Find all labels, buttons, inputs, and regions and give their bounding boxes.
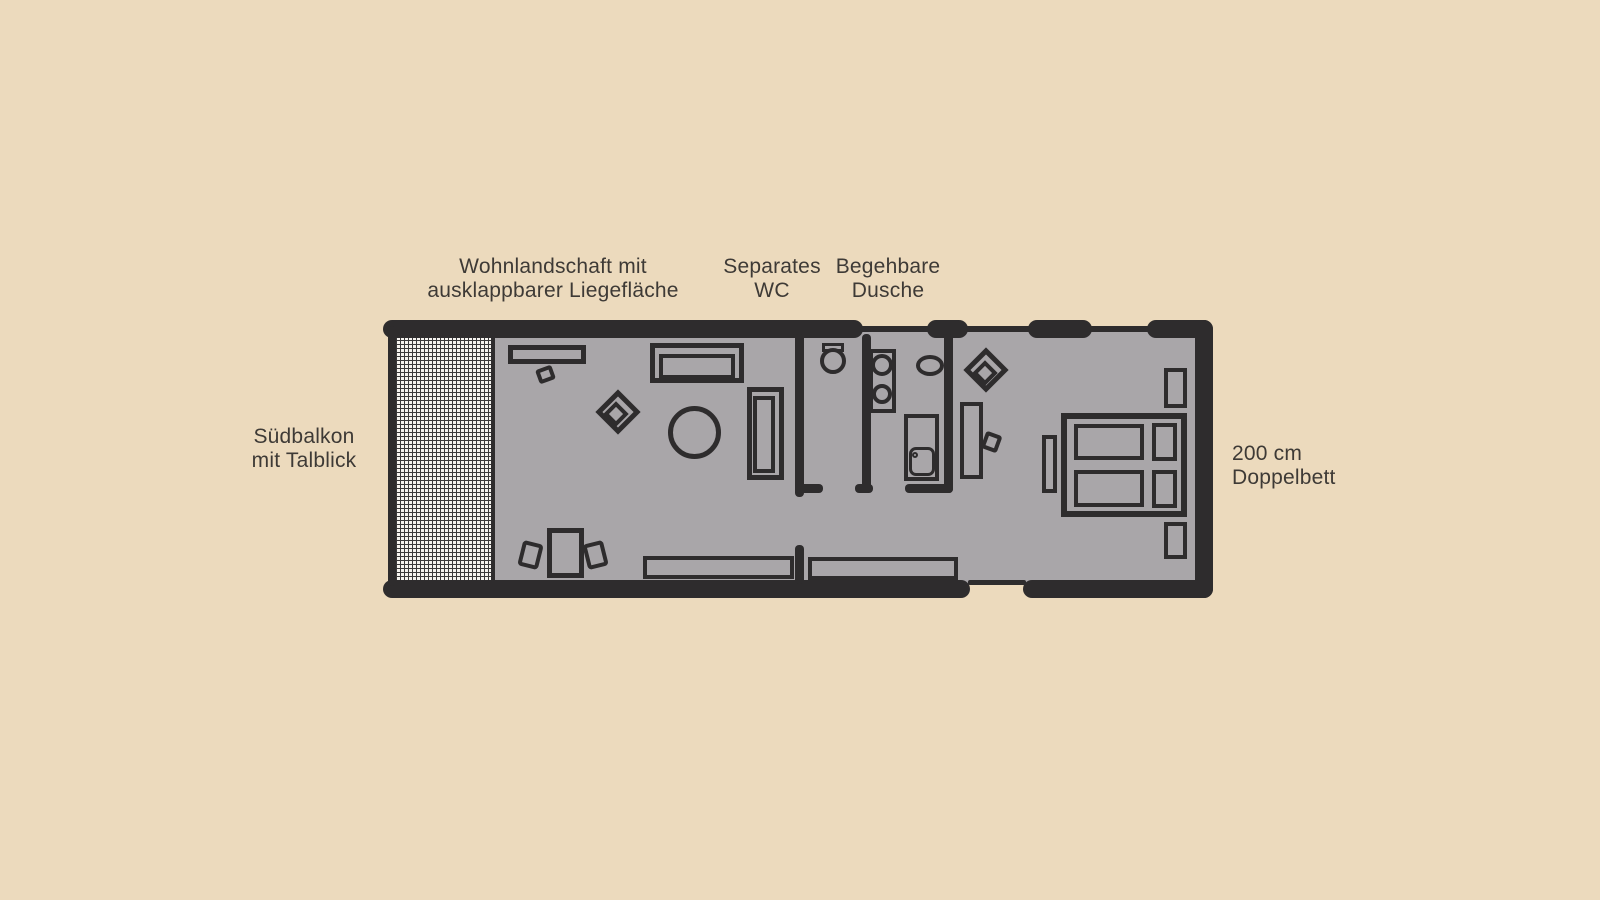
washer-unit-circle-top — [871, 354, 893, 376]
dining-table — [547, 528, 584, 578]
window-line-shower — [860, 326, 930, 332]
bed-bench — [1042, 435, 1057, 493]
label-bed-line2: Doppelbett — [1232, 466, 1412, 490]
label-balcony-line1: Südbalkon — [204, 425, 404, 449]
entrance-threshold-line — [968, 580, 1026, 585]
sofa-seat — [659, 354, 735, 379]
bench-living — [643, 556, 794, 579]
mattress-top — [1074, 424, 1144, 460]
sideboard — [508, 345, 586, 364]
wall-top-main — [383, 320, 863, 338]
window-line-bedroom-1 — [965, 326, 1031, 332]
wall-shower-bedroom — [944, 334, 953, 493]
wall-living-corridor-lower — [795, 545, 804, 584]
label-shower-line1: Begehbare — [788, 255, 988, 279]
washbasin — [916, 355, 944, 376]
desk — [960, 402, 983, 479]
label-balcony-line2: mit Talblick — [204, 449, 404, 473]
toilet-bowl — [820, 348, 846, 374]
wall-bottom-seg2 — [1023, 580, 1213, 598]
balcony-railing — [388, 326, 396, 586]
washer-unit-circle-bottom — [872, 384, 892, 404]
wall-corridor-seg1 — [795, 484, 823, 493]
round-table — [668, 406, 721, 459]
wall-living-corridor-upper — [795, 334, 804, 497]
wall-corridor-seg3 — [905, 484, 953, 493]
pillow-top — [1152, 423, 1177, 461]
label-shower: Begehbare Dusche — [788, 255, 988, 302]
pillow-bottom — [1152, 470, 1177, 508]
nightstand-top — [1164, 368, 1187, 408]
wall-corridor-seg2 — [855, 484, 873, 493]
window-line-bedroom-2 — [1089, 326, 1150, 332]
balcony-hatch — [396, 332, 495, 583]
label-balcony: Südbalkon mit Talblick — [204, 425, 404, 472]
bench-corridor — [808, 557, 958, 580]
wall-right — [1195, 320, 1213, 598]
label-bed-line1: 200 cm — [1232, 442, 1412, 466]
mattress-bottom — [1074, 470, 1144, 507]
tv-cabinet-inner — [753, 396, 775, 473]
wall-bottom-main — [383, 580, 970, 598]
wall-top-seg3 — [1028, 320, 1092, 338]
floorplan-canvas: Wohnlandschaft mit ausklappbarer Liegefl… — [0, 0, 1600, 900]
nightstand-bottom — [1164, 522, 1187, 559]
shower-drain — [912, 452, 918, 458]
label-shower-line2: Dusche — [788, 279, 988, 303]
label-double-bed: 200 cm Doppelbett — [1232, 442, 1412, 490]
